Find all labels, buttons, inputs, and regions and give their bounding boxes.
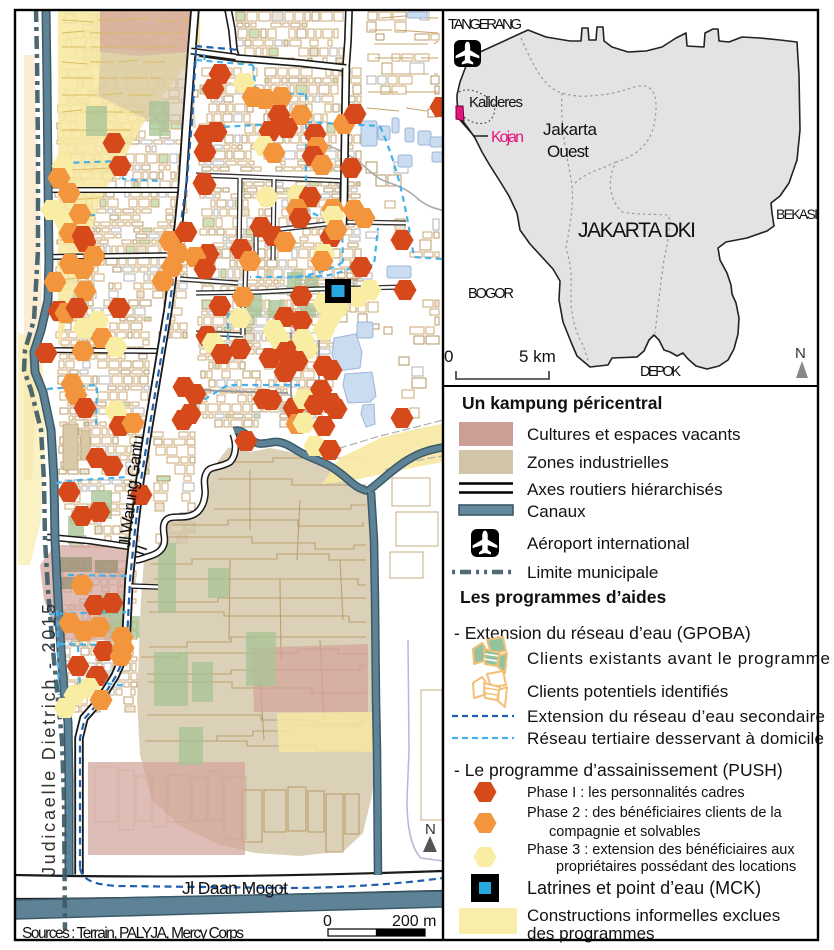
svg-text:0: 0	[444, 347, 453, 366]
svg-text:Phase 2 : des bénéficiaires cl: Phase 2 : des bénéficiaires clients de l…	[527, 805, 783, 821]
svg-text:Limite municipale: Limite municipale	[527, 563, 658, 582]
svg-text:Kojan: Kojan	[491, 129, 524, 146]
svg-text:Axes routiers hiérarchisés: Axes routiers hiérarchisés	[527, 480, 723, 499]
svg-text:N: N	[795, 345, 806, 362]
svg-text:Kalideres: Kalideres	[469, 94, 523, 111]
svg-text:JAKARTA DKI: JAKARTA DKI	[578, 219, 696, 242]
svg-text:Zones industrielles: Zones industrielles	[527, 453, 669, 472]
svg-text:Jakarta: Jakarta	[543, 120, 598, 139]
svg-text:N: N	[425, 821, 436, 838]
svg-text:BOGOR: BOGOR	[468, 286, 514, 302]
svg-text:Canaux: Canaux	[527, 502, 586, 521]
svg-text:Clients potentiels identifiés: Clients potentiels identifiés	[527, 682, 728, 701]
svg-text:Phase I : les personnalités ca: Phase I : les personnalités cadres	[527, 785, 745, 801]
svg-text:Réseau tertiaire desservant à: Réseau tertiaire desservant à domicile	[527, 729, 824, 748]
svg-text:Latrines et point d’eau (MCK): Latrines et point d’eau (MCK)	[527, 878, 761, 898]
svg-text:5 km: 5 km	[519, 347, 556, 366]
svg-text:0: 0	[323, 913, 332, 930]
svg-text:Un kampung péricentral: Un kampung péricentral	[462, 393, 662, 413]
svg-text:Phase 3 : extension des bénéfi: Phase 3 : extension des bénéficiaires au…	[527, 842, 795, 858]
svg-text:Clients existants avant le pro: Clients existants avant le programme	[527, 649, 830, 668]
svg-text:TANGERANG: TANGERANG	[448, 16, 522, 33]
svg-text:200 m: 200 m	[392, 913, 436, 930]
svg-text:Les programmes d’aides: Les programmes d’aides	[460, 587, 666, 607]
svg-text:Cultures et espaces vacants: Cultures et espaces vacants	[527, 425, 741, 444]
svg-text:Ouest: Ouest	[547, 142, 589, 161]
svg-text:Constructions informelles excl: Constructions informelles exclues	[527, 906, 780, 925]
svg-text:compagnie et solvables: compagnie et solvables	[549, 824, 701, 840]
svg-text:BEKASI: BEKASI	[776, 206, 818, 222]
svg-text:Extension du réseau d’eau seco: Extension du réseau d’eau secondaire	[527, 707, 825, 726]
svg-text:propriétaires possédant des lo: propriétaires possédant des locations	[556, 859, 796, 875]
svg-text:Jl Daan Mogot: Jl Daan Mogot	[182, 878, 288, 898]
svg-text:- Le programme d’assainissemen: - Le programme d’assainissement (PUSH)	[454, 760, 783, 780]
svg-text:DEPOK: DEPOK	[640, 364, 681, 380]
svg-text:Aéroport international: Aéroport international	[527, 534, 690, 553]
